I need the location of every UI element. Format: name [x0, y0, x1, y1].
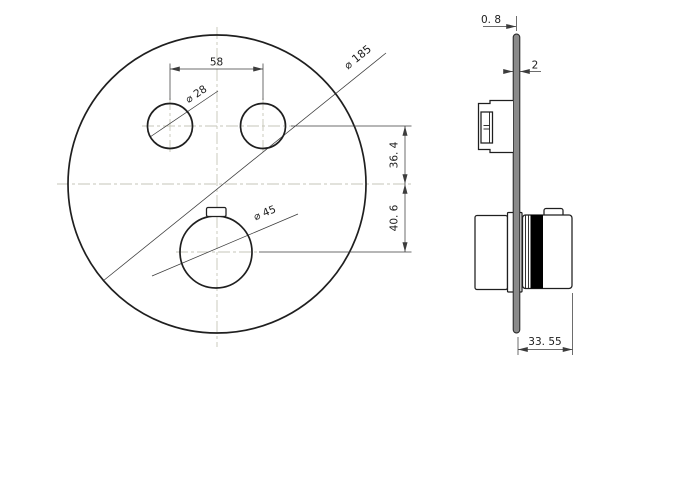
knob-diameter-leader [152, 214, 298, 276]
dim-0-8: 0. 8 [481, 14, 517, 31]
button-housing-side [479, 101, 514, 153]
centerlines [57, 27, 414, 347]
knob-indicator-tab [207, 208, 227, 217]
dim-58: 58 [170, 57, 263, 101]
dim-58-label: 58 [210, 57, 223, 69]
dim-33-55-label: 33. 55 [528, 336, 561, 348]
valve-body-cylinder [475, 216, 508, 290]
button-cap [481, 112, 493, 143]
dim-33-55: 33. 55 [518, 293, 573, 355]
drawing-sheet: 58 36. 4 40. 6 ⌀ 28 ⌀ 185 ⌀ 45 [0, 0, 678, 480]
escutcheon-plate-side [513, 34, 520, 333]
front-view: 58 36. 4 40. 6 ⌀ 28 ⌀ 185 ⌀ 45 [57, 27, 414, 347]
knob-grip-band [531, 215, 544, 289]
knob-outline [523, 215, 573, 289]
technical-drawing: 58 36. 4 40. 6 ⌀ 28 ⌀ 185 ⌀ 45 [0, 0, 678, 480]
side-view: 0. 8 2 33. 55 [475, 14, 573, 355]
knob-side [523, 215, 573, 289]
dia-185-label: ⌀ 185 [342, 42, 374, 72]
dia-28-label: ⌀ 28 [183, 83, 209, 106]
dim-36-4-label: 36. 4 [389, 141, 401, 168]
dim-2-label: 2 [532, 60, 539, 72]
leader-lines [103, 53, 386, 281]
dim-40-6-label: 40. 6 [389, 204, 401, 231]
dim-2: 2 [506, 60, 541, 72]
dim-0-8-label: 0. 8 [481, 14, 501, 26]
dim-vertical-chain: 36. 4 40. 6 [259, 126, 412, 252]
plate-diameter-leader [103, 53, 386, 281]
dia-45-label: ⌀ 45 [252, 203, 278, 223]
